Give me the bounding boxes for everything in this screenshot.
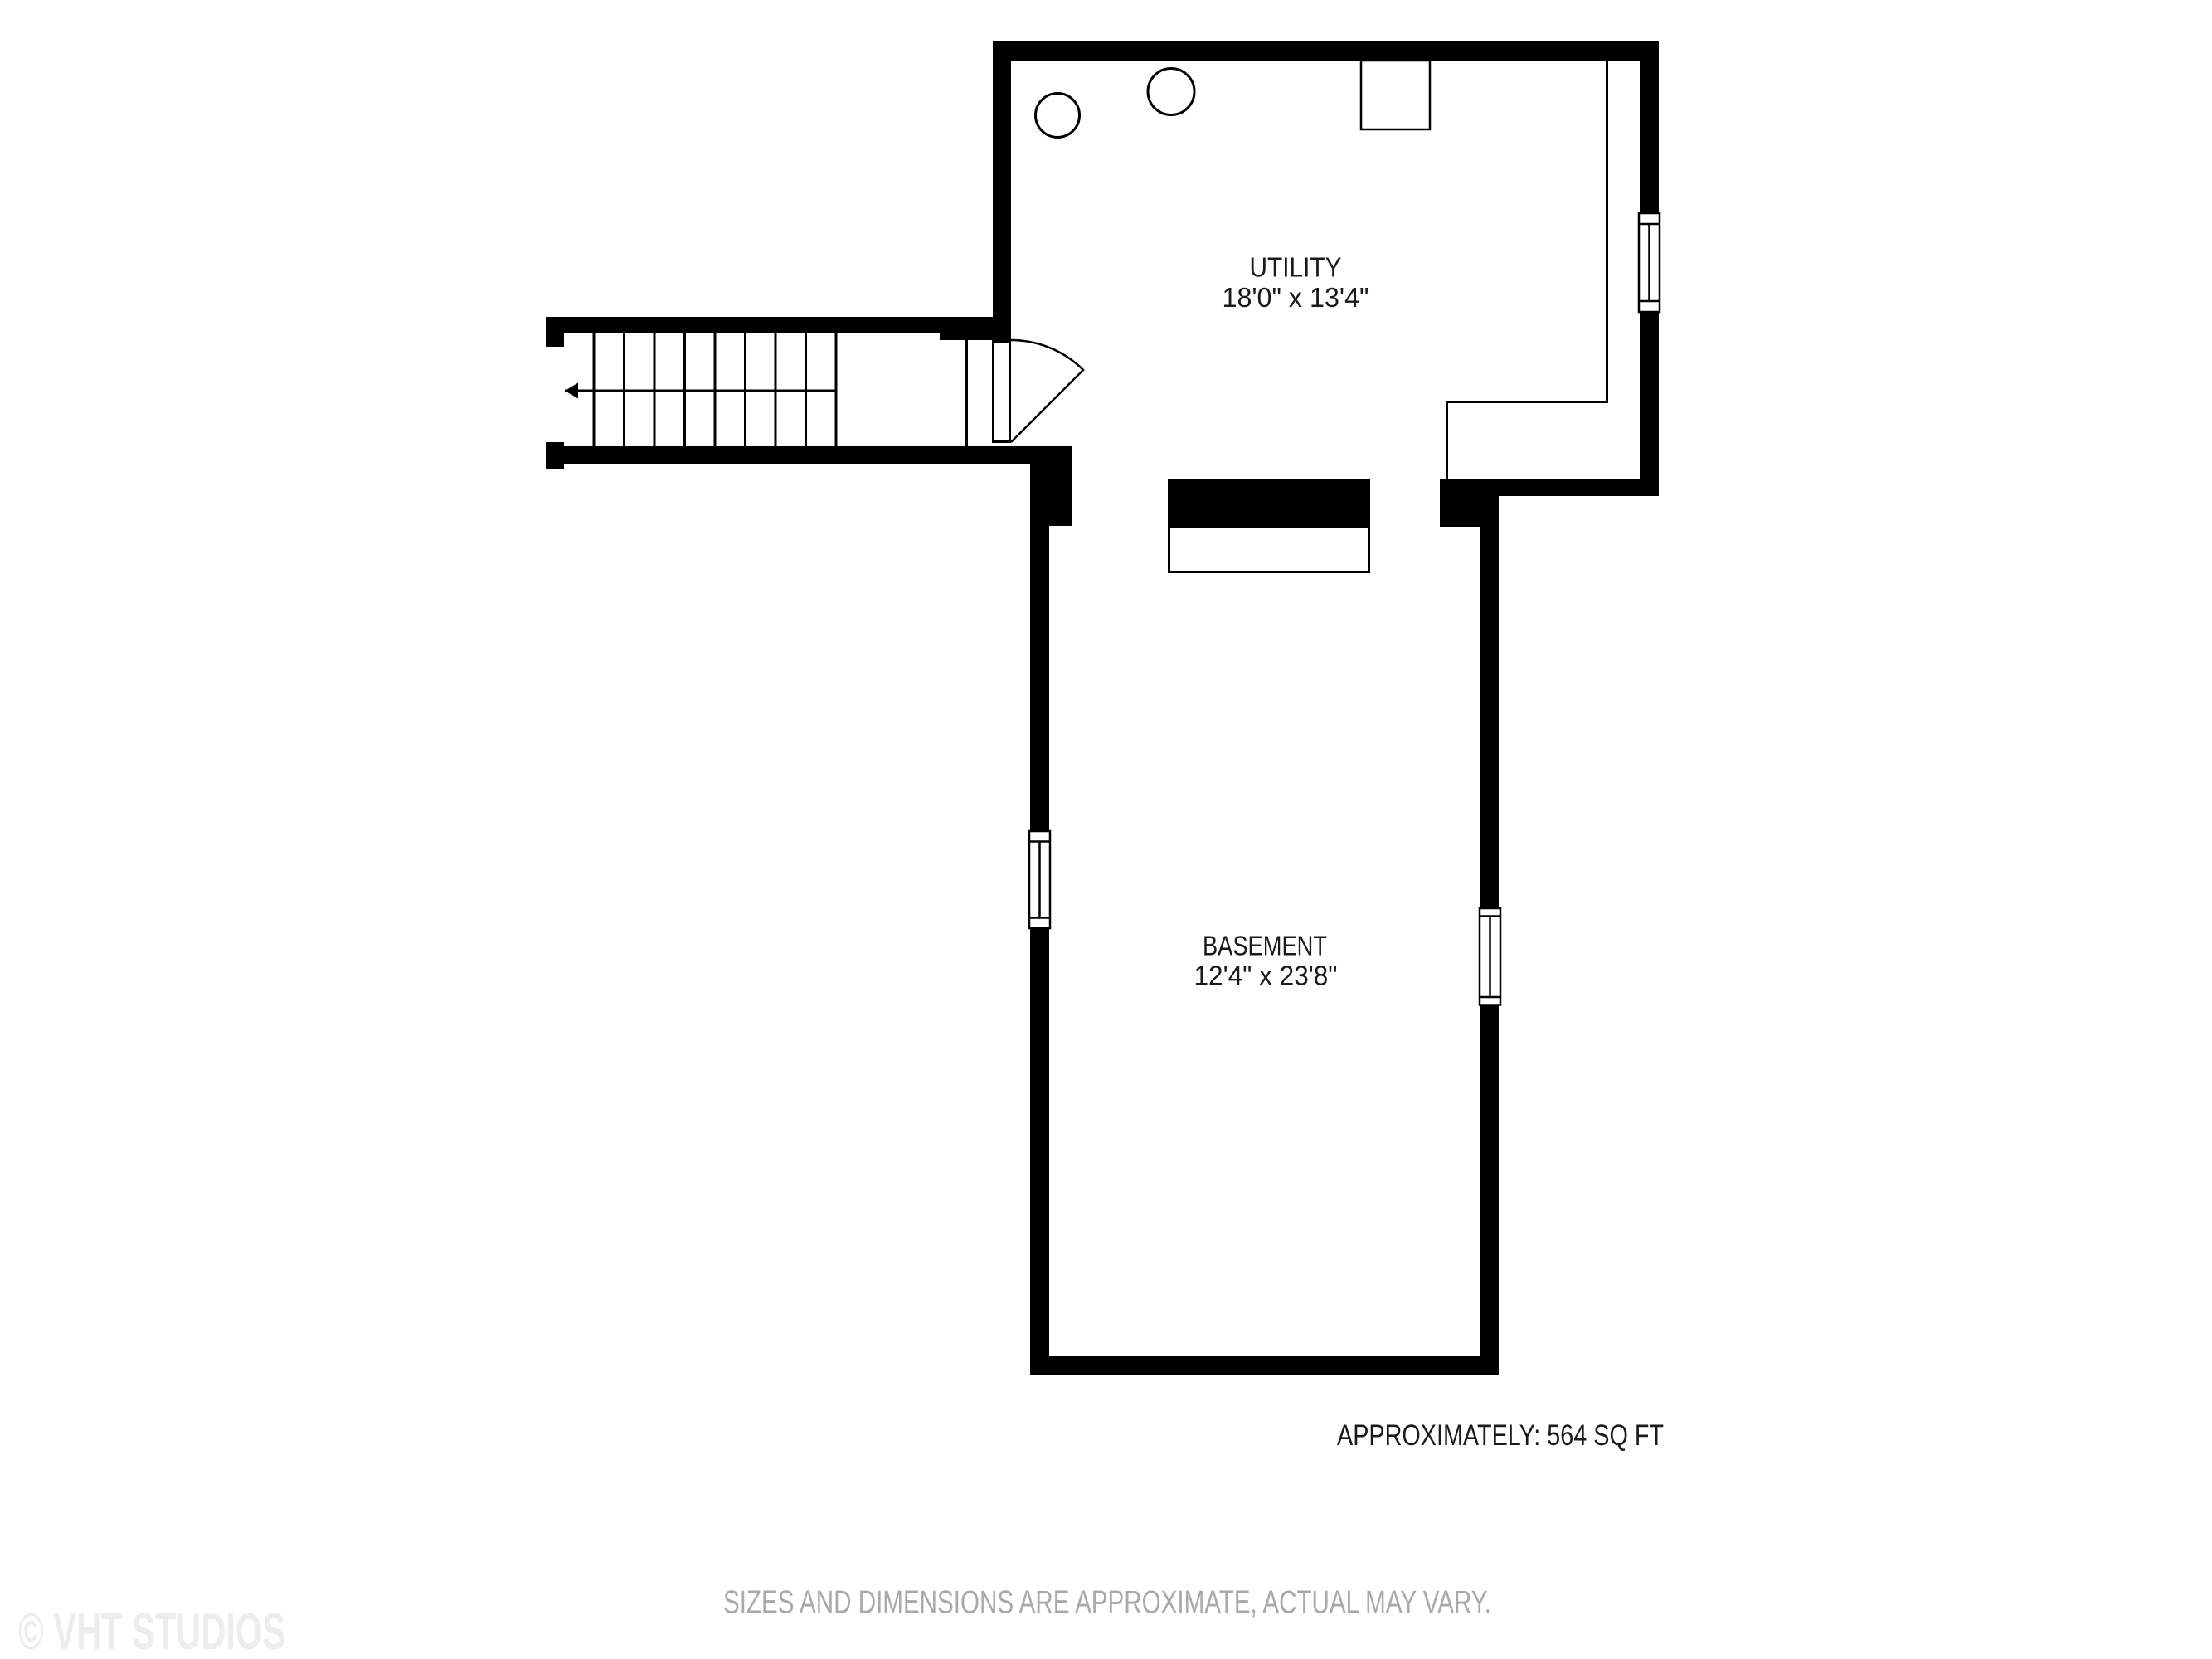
svg-text:© VHT STUDIOS: © VHT STUDIOS bbox=[18, 1603, 285, 1659]
svg-text:SIZES AND DIMENSIONS ARE APPRO: SIZES AND DIMENSIONS ARE APPROXIMATE, AC… bbox=[723, 1585, 1491, 1621]
svg-text:BASEMENT: BASEMENT bbox=[1203, 931, 1327, 961]
svg-text:12'4" x 23'8": 12'4" x 23'8" bbox=[1194, 961, 1338, 991]
svg-text:APPROXIMATELY: 564 SQ FT: APPROXIMATELY: 564 SQ FT bbox=[1337, 1419, 1664, 1452]
svg-text:UTILITY: UTILITY bbox=[1250, 252, 1342, 283]
svg-text:18'0" x 13'4": 18'0" x 13'4" bbox=[1223, 282, 1369, 313]
